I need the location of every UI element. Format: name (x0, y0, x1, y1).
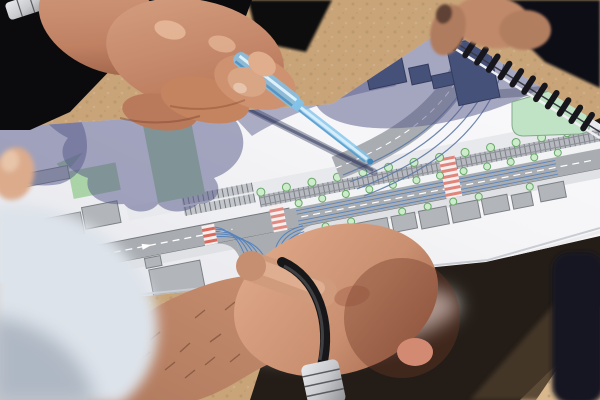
blurred-dark-object (552, 252, 600, 400)
finger-bump (397, 338, 433, 366)
photo-canvas (0, 0, 600, 400)
photo-scene (0, 0, 600, 400)
holder-finger (499, 10, 551, 50)
index-fingertip (236, 251, 266, 281)
